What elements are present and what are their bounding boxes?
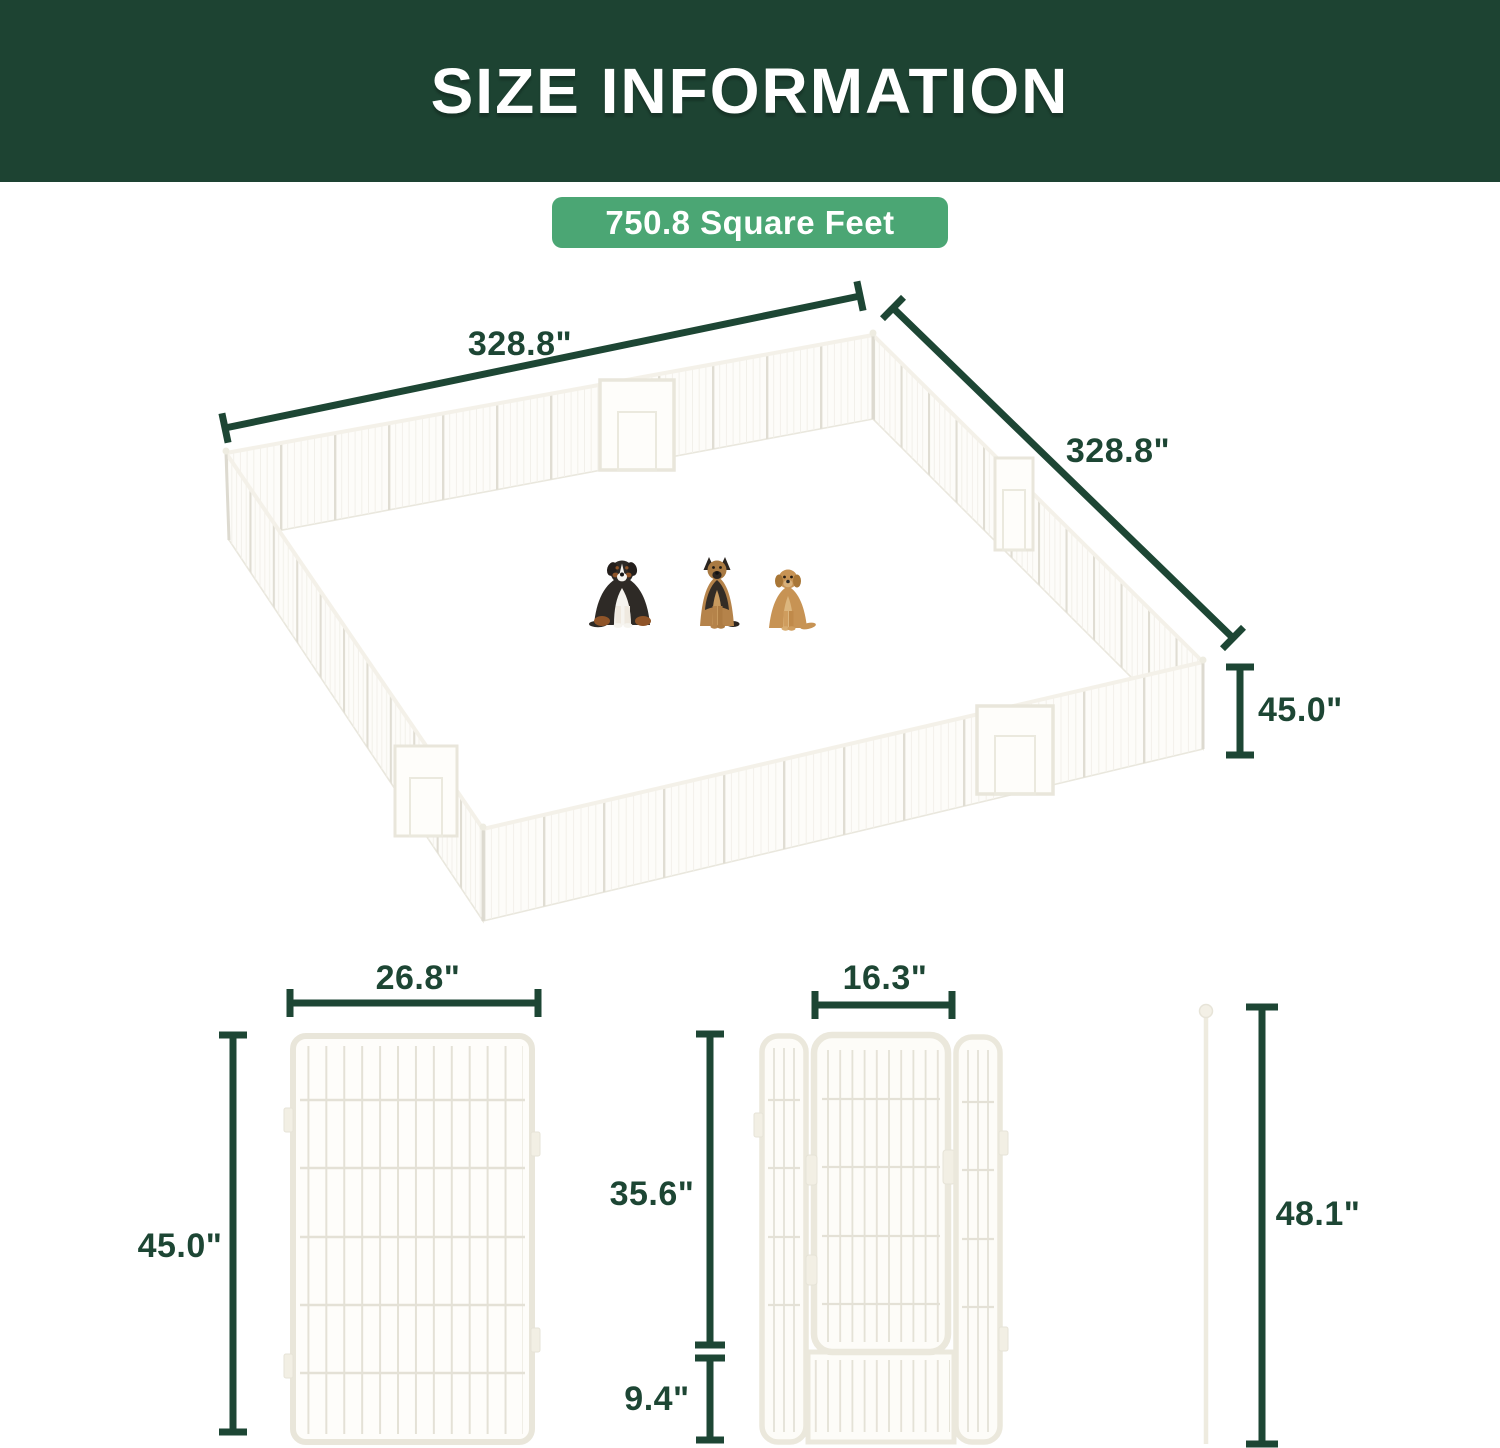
dimension-fence-height (1226, 667, 1254, 755)
gate-door (806, 1035, 955, 1352)
top-width-label: 328.8" (468, 325, 572, 363)
side-depth-label: 328.8" (1066, 432, 1170, 470)
fence-wall-front-right-mesh (483, 662, 1203, 921)
fence-height-label: 45.0" (1258, 691, 1343, 729)
fence-door-front-left (395, 746, 457, 836)
panel-width-label: 26.8" (376, 959, 461, 997)
pole-ball-top (1200, 1005, 1213, 1018)
door-latch (943, 1150, 955, 1184)
gate-right-tab-top (999, 1131, 1008, 1155)
door-width-label: 16.3" (843, 959, 928, 997)
pole-height-label: 48.1" (1276, 1195, 1361, 1233)
gate-left-tab (754, 1113, 763, 1137)
gate-diagram (754, 1035, 1008, 1442)
gate-right-tab-bottom (999, 1327, 1008, 1351)
fence-wall-front-left-mesh (226, 453, 483, 921)
golden-retriever-icon (769, 570, 816, 631)
dimension-panel-height (219, 1035, 247, 1432)
fence-door-front-right (977, 706, 1053, 794)
panel-bars (303, 1046, 523, 1434)
panel-height-label: 45.0" (138, 1227, 223, 1265)
dimension-gate-upper-height (695, 1034, 725, 1440)
gate-left-section (754, 1036, 806, 1442)
dimension-pole-height (1246, 1007, 1278, 1444)
gate-right-section (956, 1037, 1008, 1442)
dogs-illustration (589, 557, 816, 631)
fence-door-back-left (600, 380, 674, 470)
german-shepherd-icon (700, 557, 740, 629)
bernese-mountain-dog-icon (589, 561, 651, 628)
door-hinge-top (806, 1155, 817, 1185)
pole-diagram (1200, 1005, 1213, 1445)
fence-door-back-right (995, 458, 1033, 550)
door-hinge-bottom (806, 1255, 817, 1285)
gate-upper-height-label: 35.6" (610, 1175, 695, 1213)
gate-bottom-height-label: 9.4" (624, 1380, 689, 1418)
size-diagram-canvas: 328.8" 328.8" 45.0" (0, 0, 1500, 1448)
gate-bottom-section (808, 1352, 954, 1442)
page: SIZE INFORMATION 750.8 Square Feet (0, 0, 1500, 1448)
panel-diagram (284, 1036, 540, 1442)
fence-top-rail-back-right (873, 335, 1203, 662)
